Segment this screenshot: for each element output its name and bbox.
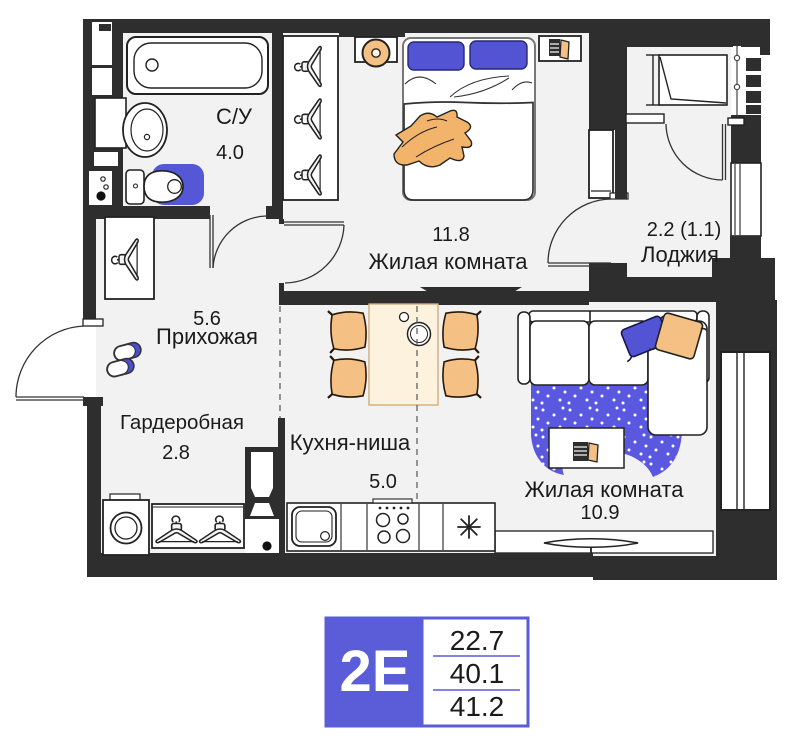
svg-text:2Е: 2Е — [340, 639, 411, 704]
svg-text:10.9: 10.9 — [581, 502, 620, 524]
svg-text:2.2 (1.1): 2.2 (1.1) — [647, 219, 721, 241]
svg-text:Прихожая: Прихожая — [156, 324, 258, 349]
svg-text:40.1: 40.1 — [450, 658, 505, 689]
svg-text:Жилая комната: Жилая комната — [525, 477, 685, 502]
svg-text:5.0: 5.0 — [369, 471, 397, 493]
svg-text:Жилая комната: Жилая комната — [369, 249, 529, 274]
svg-text:Лоджия: Лоджия — [641, 242, 719, 267]
svg-text:22.7: 22.7 — [450, 625, 505, 656]
svg-text:Гардеробная: Гардеробная — [120, 411, 244, 434]
svg-text:4.0: 4.0 — [216, 142, 244, 164]
svg-text:2.8: 2.8 — [162, 442, 190, 464]
svg-text:41.2: 41.2 — [450, 691, 505, 722]
svg-text:Кухня-ниша: Кухня-ниша — [290, 430, 411, 455]
svg-text:11.8: 11.8 — [432, 224, 469, 246]
svg-text:С/У: С/У — [216, 104, 253, 129]
